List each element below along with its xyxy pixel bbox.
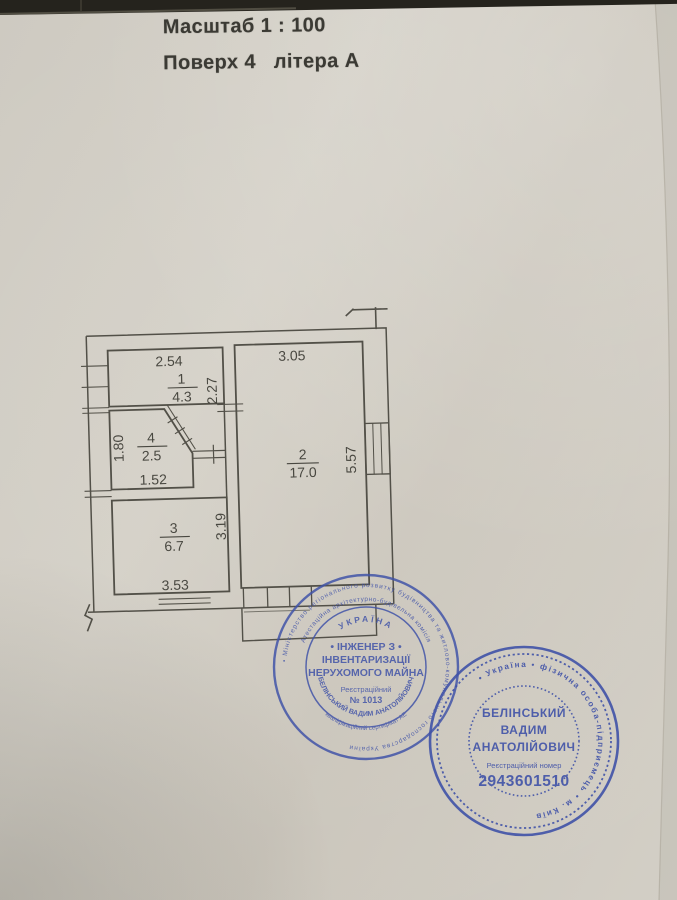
dim-room3-width: 3.53 [161,576,189,593]
dim-corridor-height: 3.19 [212,513,229,541]
stamp-fop-name2: ВАДИМ [501,723,548,737]
room2-number: 2 [298,446,306,462]
country-textpath: УКРАЇНА [337,614,396,631]
room4-number: 4 [147,429,155,445]
wall-break-mark [85,604,93,631]
dim-room4-height: 1.80 [110,434,127,462]
scale-label: Масштаб 1 : 100 [163,7,360,45]
balcony-door-unit [243,586,312,608]
stamp-fop-reg-number: 2943601510 [478,773,569,790]
stamp-engineer-title3: НЕРУХОМОГО МАЙНА [308,666,424,679]
dim-room2-height: 5.57 [342,446,359,474]
stamp-engineer-reg-number: № 1013 [350,695,383,705]
stamp-engineer-title2: ІНВЕНТАРИЗАЦІЇ [322,653,411,666]
document-photo: Масштаб 1 : 100 Поверх 4 літера А [0,0,677,900]
window-right [365,423,390,475]
paper-right-edge-shade [655,0,677,900]
window-bottom-room3 [159,598,211,604]
stamp-fop-reg-label: Реєстраційний номер [487,761,562,770]
dim-room1-width: 2.54 [155,353,183,370]
top-right-marker [346,307,389,330]
page-top-tick [80,0,82,11]
stamp-engineer-country: УКРАЇНА [337,614,396,631]
outer-wall-left [86,336,94,612]
floor-label: Поверх 4 літера А [163,43,360,81]
dim-room4-width: 1.52 [139,471,167,488]
stamp-fop: • Україна • фізична особа-підприємець • … [430,647,618,835]
floorplan-and-stamps: 2.54 3.05 1 4.3 2.27 2 17.0 5.57 4 2.5 1… [0,0,677,900]
stamp-engineer-title1: • ІНЖЕНЕР З • [330,641,402,653]
room-4-door-hatches [167,416,192,445]
dim-room1-height: 2.27 [203,377,220,405]
stamp-fop-name1: БЕЛІНСЬКИЙ [482,705,566,720]
plan-header: Масштаб 1 : 100 Поверх 4 літера А [163,7,360,81]
room1-area: 4.3 [172,388,192,405]
room4-area: 2.5 [142,447,162,464]
room2-area: 17.0 [289,464,317,481]
balcony-sill [244,610,310,612]
window-right-panes [373,423,382,474]
left-wall-ticks [81,366,112,498]
corridor-threshold [192,444,226,464]
stamp-fop-name3: АНАТОЛІЙОВИЧ [473,739,576,754]
dividing-wall-ticks [217,404,243,412]
dim-room2-width: 3.05 [278,347,306,364]
room-4-door-diagonal [167,404,195,450]
room1-number: 1 [177,370,185,386]
floor-plan [77,307,397,646]
room3-number: 3 [169,520,177,536]
room3-area: 6.7 [164,538,184,555]
stamp-engineer-reg-label: Реєстраційний [341,685,392,694]
